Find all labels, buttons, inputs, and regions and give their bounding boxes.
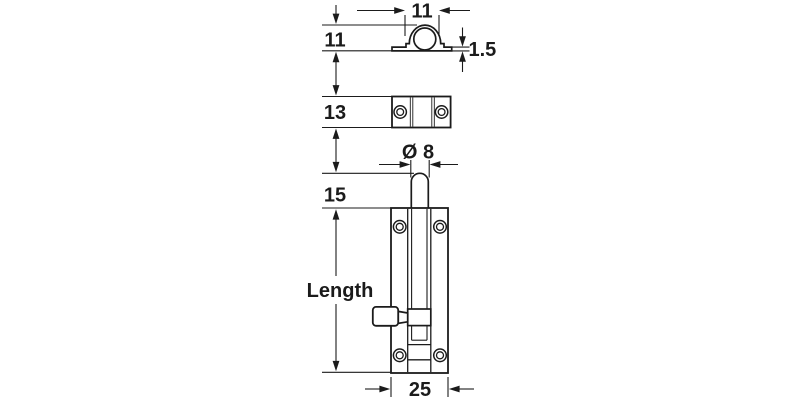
- arrowhead-left: [439, 7, 450, 14]
- bolt-slider-block: [408, 309, 431, 326]
- dimension-keeper-plate-depth: 13: [322, 97, 392, 173]
- arrowhead-up: [459, 51, 466, 61]
- dimension-label: 11: [324, 30, 345, 52]
- arrowhead-up: [333, 129, 340, 139]
- screw-hole-inner: [396, 223, 403, 230]
- technical-drawing-canvas: 11 11 1.5 13: [0, 0, 800, 400]
- arrowhead-down: [333, 361, 340, 371]
- dimension-bolt-diameter: Ø 8: [379, 142, 458, 178]
- arrowhead-right: [379, 386, 390, 393]
- dimension-label: Length: [307, 280, 374, 302]
- dimension-body-length: Length: [307, 209, 391, 372]
- dimension-pin-protrusion: 15: [322, 173, 414, 208]
- dimension-keeper-base-thickness: 1.5: [452, 28, 497, 73]
- bolt-body-view: [373, 173, 448, 373]
- arrowhead-down: [459, 36, 466, 46]
- keeper-bolt-hole: [414, 28, 436, 50]
- screw-hole-inner: [437, 223, 444, 230]
- dimension-label: 15: [324, 185, 346, 207]
- arrowhead-up: [333, 52, 340, 62]
- arrowhead-up: [333, 209, 340, 219]
- barrel-bolt-drawing: 11 11 1.5 13: [0, 0, 800, 400]
- bolt-pin: [411, 173, 428, 208]
- dimension-label: 1.5: [469, 39, 497, 61]
- arrowhead-down: [333, 162, 340, 172]
- screw-hole-inner: [438, 109, 445, 116]
- screw-hole-inner: [437, 352, 444, 359]
- screw-hole-inner: [396, 352, 403, 359]
- dimension-label: 11: [411, 1, 432, 23]
- keeper-top-view: [392, 97, 451, 128]
- dimension-body-width: 25: [365, 377, 474, 400]
- dimension-label: 13: [324, 102, 346, 124]
- knob: [373, 307, 398, 326]
- arrowhead-right: [394, 7, 405, 14]
- arrowhead-down: [333, 85, 340, 95]
- knob-neck: [398, 311, 408, 323]
- arrowhead-down: [333, 14, 340, 24]
- screw-hole-inner: [397, 109, 404, 116]
- arrowhead-left: [449, 386, 460, 393]
- keeper-profile-view: [392, 25, 452, 51]
- dimension-label: 25: [409, 379, 431, 400]
